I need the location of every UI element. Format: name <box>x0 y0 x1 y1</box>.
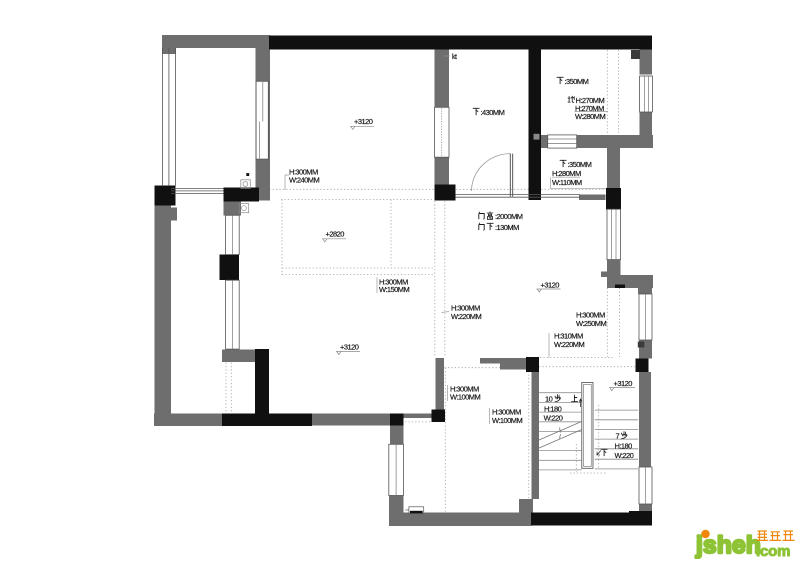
svg-text:+2820: +2820 <box>326 229 345 238</box>
svg-text:+3120: +3120 <box>541 280 560 289</box>
svg-text:W:220MM: W:220MM <box>554 340 584 349</box>
svg-text:.com: .com <box>756 543 790 559</box>
svg-text:W:280MM: W:280MM <box>575 112 605 121</box>
svg-text:W:220: W:220 <box>615 451 634 460</box>
svg-text::430MM: :430MM <box>481 108 505 117</box>
svg-text:7: 7 <box>616 431 620 440</box>
svg-text:H:180: H:180 <box>544 405 562 414</box>
svg-text:10: 10 <box>545 395 553 404</box>
svg-text:W:240MM: W:240MM <box>289 176 319 185</box>
svg-text:W:100MM: W:100MM <box>492 416 522 425</box>
svg-text:H:180: H:180 <box>615 441 633 450</box>
svg-text:H:280MM: H:280MM <box>552 169 581 178</box>
svg-text:W:250MM: W:250MM <box>576 319 606 328</box>
svg-text:W:110MM: W:110MM <box>552 178 582 187</box>
svg-text::130MM: :130MM <box>495 223 519 232</box>
svg-text:W:100MM: W:100MM <box>450 393 480 402</box>
svg-text:+3120: +3120 <box>340 343 359 352</box>
svg-text::350MM: :350MM <box>568 160 592 169</box>
svg-text:+3120: +3120 <box>614 379 633 388</box>
svg-text:W:150MM: W:150MM <box>379 285 409 294</box>
svg-text:kt: kt <box>452 54 457 61</box>
svg-text:W:220: W:220 <box>544 413 563 422</box>
svg-text:+3120: +3120 <box>354 117 373 126</box>
svg-text:W:220MM: W:220MM <box>451 312 481 321</box>
svg-text::350MM: :350MM <box>565 77 589 86</box>
svg-text::2000MM: :2000MM <box>495 212 523 221</box>
